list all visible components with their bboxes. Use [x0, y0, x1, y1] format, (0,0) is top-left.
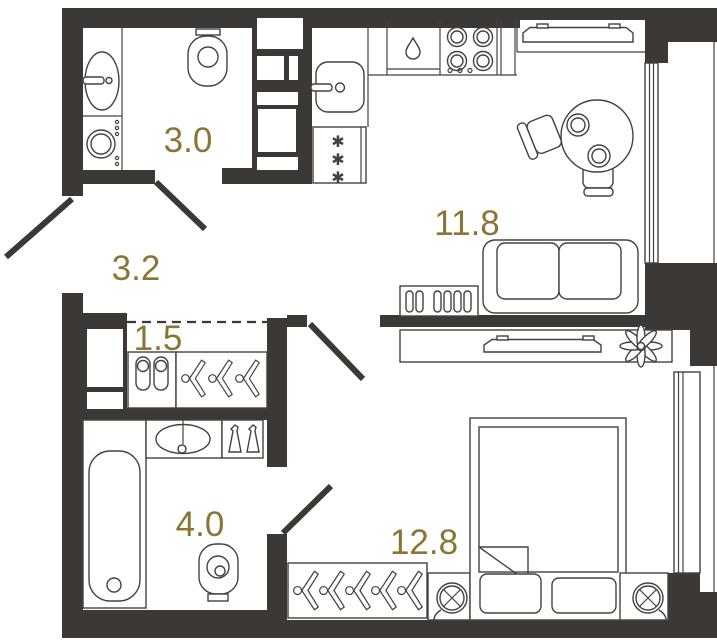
- toilet-icon: [199, 544, 238, 601]
- nightstand-lamp-icon: [428, 573, 470, 620]
- svg-text:✱: ✱: [331, 150, 344, 169]
- svg-text:✱: ✱: [331, 132, 344, 151]
- floor-plan: ✱ ✱ ✱: [0, 0, 717, 640]
- room-label-closet: 1.5: [134, 319, 183, 358]
- bedroom-door-swing-icon: [310, 324, 363, 379]
- svg-text:✱: ✱: [331, 168, 344, 187]
- sink-icon: [146, 420, 222, 458]
- bathroom-top-door-swing-icon: [156, 182, 205, 229]
- tv-dresser-icon: [400, 325, 672, 367]
- toilet-icon: [188, 29, 227, 86]
- room-label-kitchen-living: 11.8: [434, 204, 500, 243]
- slippers-icon: [128, 352, 176, 408]
- kitchen-fixtures: ✱ ✱ ✱: [311, 20, 645, 316]
- bathtub-icon: [83, 420, 146, 608]
- hangers-icon: [176, 352, 267, 408]
- sofa-icon: [483, 240, 638, 313]
- entrance-door-swing-icon: [6, 199, 72, 257]
- plant-icon: [620, 325, 662, 367]
- room-label-hallway: 3.2: [112, 249, 161, 288]
- stove-burners-icon: [448, 28, 493, 73]
- dining-table-icon: [516, 100, 633, 196]
- chair-icon: [516, 112, 564, 161]
- radiator-icon: [517, 20, 645, 52]
- nightstand-lamp-icon: [620, 573, 668, 620]
- bathroom-bottom-fixtures: [83, 420, 263, 608]
- bed-icon: [470, 418, 626, 620]
- living-room-window-icon: [645, 63, 658, 263]
- dishwasher-drop-icon: [387, 38, 440, 69]
- kitchen-sink-icon: [311, 62, 364, 112]
- washing-machine-icon: [87, 120, 119, 165]
- fridge-snowflakes-icon: ✱ ✱ ✱: [313, 127, 366, 187]
- wardrobe-hangers-icon: [288, 563, 427, 618]
- vent-shaft-kitchen: [252, 8, 312, 184]
- console-icon: [400, 286, 478, 316]
- room-label-bathroom-top: 3.0: [164, 121, 213, 160]
- bedroom-window-icon: [674, 372, 700, 573]
- room-label-bathroom-bottom: 4.0: [176, 505, 225, 544]
- bedroom-fixtures: [288, 325, 672, 620]
- room-label-bedroom: 12.8: [390, 523, 458, 562]
- sink-icon: [83, 52, 119, 110]
- bathroom-bottom-door-swing-icon: [283, 486, 331, 533]
- bottles-icon: [222, 420, 263, 458]
- vent-shaft-closet: [83, 313, 127, 410]
